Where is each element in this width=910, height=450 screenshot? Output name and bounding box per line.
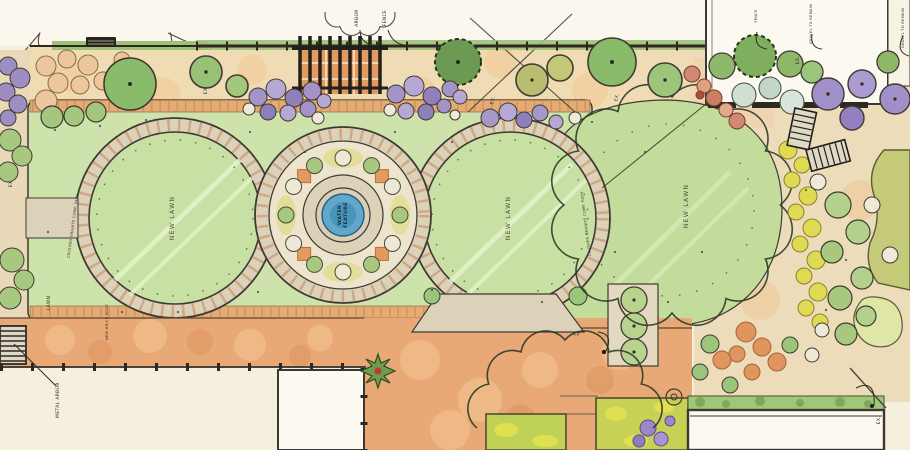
agave-star-plant xyxy=(361,354,395,388)
new-lawn-label-large: NEW LAWN xyxy=(683,184,690,228)
existing-tree-label: EX. xyxy=(203,86,209,94)
bench xyxy=(86,37,116,47)
parterre-garden: WATERFEATURE xyxy=(255,127,431,303)
brick-edge-label: NEW BRICK EDGE xyxy=(105,304,109,340)
new-lawn-label-left: NEW LAWN xyxy=(169,196,176,240)
gravel-note-label-2: GRAVEL TO REMAIN xyxy=(901,8,905,48)
existing-tree-label: EX. xyxy=(8,179,14,187)
existing-tree-label: EX. xyxy=(795,56,801,64)
fire-pit-label: FP xyxy=(574,332,580,338)
arbor-label: ARBOR xyxy=(354,9,360,27)
fence-label: FENCE xyxy=(382,10,388,26)
shrub xyxy=(569,287,587,305)
water-feature-center xyxy=(330,202,356,228)
garden-master-plan: WATERFEATURE xyxy=(0,0,910,450)
new-lawn-label-right: NEW LAWN xyxy=(505,196,512,240)
lawn-label: LAWN xyxy=(46,296,52,311)
agave-center xyxy=(375,368,382,375)
gravel-note-label: GRAVEL TO REMAIN xyxy=(809,4,813,44)
metal-arbor-label: METAL ARBOR xyxy=(55,382,61,418)
conifer-tree xyxy=(734,35,776,77)
leader-dot xyxy=(870,404,874,408)
rear-hedge-strip xyxy=(688,396,884,410)
leader-dot xyxy=(602,350,606,354)
fence-note-label: FENCE xyxy=(754,9,758,23)
existing-tree-label: EX. xyxy=(876,416,882,424)
plan-drawing: WATERFEATURE xyxy=(0,0,910,450)
house-footprint xyxy=(278,370,364,450)
metal-arbor-structure xyxy=(0,326,26,364)
